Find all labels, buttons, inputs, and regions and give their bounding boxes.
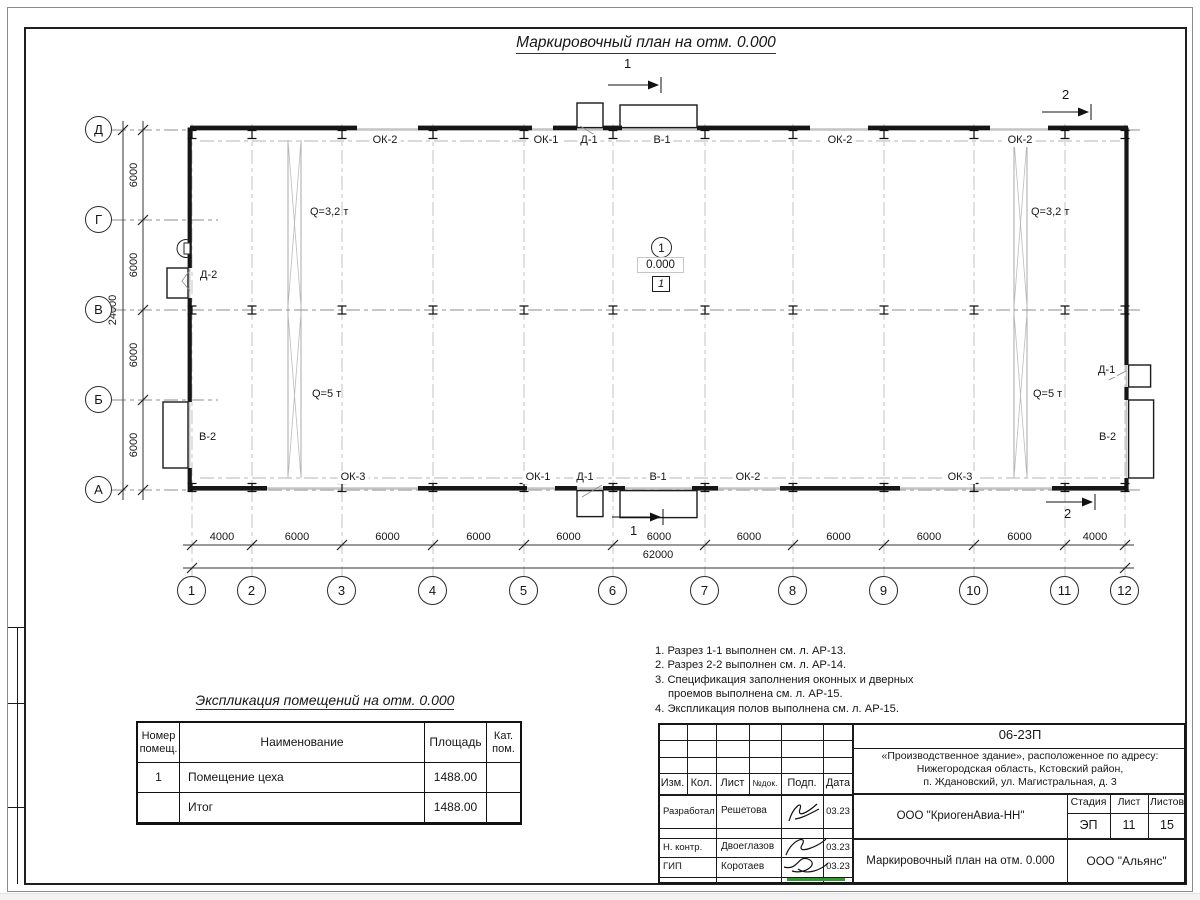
tb-header-list: Лист bbox=[716, 773, 749, 794]
tb-name: Коротаев bbox=[718, 857, 780, 877]
green-mark bbox=[787, 878, 845, 881]
section-mark-2-bottom: 2 bbox=[1064, 506, 1071, 521]
tb-date: 03.23 bbox=[823, 799, 853, 824]
dim-bottom-segment: 6000 bbox=[917, 531, 941, 543]
table-header-room-number: Номерпомещ. bbox=[138, 723, 180, 763]
dim-bottom-segment: 4000 bbox=[210, 531, 234, 543]
left-strip-cell-line bbox=[8, 703, 25, 704]
table-cell-cat bbox=[487, 763, 520, 793]
table-cell-area: 1488.00 bbox=[425, 763, 487, 793]
tb-header-ndok: №док. bbox=[749, 773, 781, 794]
room-table-title: Экспликация помещений на отм. 0.000 bbox=[150, 692, 500, 708]
note-line: 2. Разрез 2-2 выполнен см. л. АР-14. bbox=[655, 658, 965, 672]
crane-capacity-label: Q=3,2 т bbox=[1031, 206, 1069, 218]
window-mark: ОК-1 bbox=[523, 471, 554, 484]
title-block-line bbox=[716, 723, 717, 884]
note-line: 3. Спецификация заполнения оконных и две… bbox=[655, 673, 965, 687]
tb-stage-value: ЭП bbox=[1067, 814, 1110, 838]
table-header-area: Площадь bbox=[425, 723, 487, 763]
window-mark: ОК-3 bbox=[945, 471, 976, 484]
table-header-category: Кат.пом. bbox=[487, 723, 520, 763]
tb-project-line3: п. Ждановский, ул. Магистральная, д. 3 bbox=[860, 776, 1180, 790]
tb-drawing-name: Маркировочный план на отм. 0.000 bbox=[854, 840, 1067, 882]
axis-bubble-col-4: 4 bbox=[418, 576, 447, 605]
page-edge-strip bbox=[0, 893, 1200, 894]
dim-bottom-segment: 6000 bbox=[737, 531, 761, 543]
axis-bubble-row-В: В bbox=[85, 296, 112, 323]
crane-capacity-label: Q=5 т bbox=[312, 388, 341, 400]
tb-project-line1: «Производственное здание», расположенное… bbox=[860, 750, 1180, 764]
tb-header-izm: Изм. bbox=[658, 773, 687, 794]
tb-stage-label: Стадия bbox=[1067, 793, 1110, 813]
plan-linework bbox=[0, 0, 1200, 660]
note-line: 1. Разрез 1-1 выполнен см. л. АР-13. bbox=[655, 644, 965, 658]
gate-mark: В-1 bbox=[646, 471, 669, 484]
table-cell-num: 1 bbox=[138, 763, 180, 793]
tb-header-podp: Подп. bbox=[781, 773, 823, 794]
notes-block: 1. Разрез 1-1 выполнен см. л. АР-13. 2. … bbox=[655, 644, 965, 716]
door-mark: Д-1 bbox=[577, 134, 600, 147]
axis-bubble-row-Г: Г bbox=[85, 206, 112, 233]
left-strip-cell-line bbox=[8, 807, 25, 808]
title-block-line bbox=[658, 740, 853, 741]
axis-bubble-row-Б: Б bbox=[85, 386, 112, 413]
window-mark: ОК-1 bbox=[531, 134, 562, 147]
title-block-line bbox=[658, 828, 853, 829]
table-cell-num bbox=[138, 793, 180, 823]
axis-bubble-col-12: 12 bbox=[1110, 576, 1139, 605]
section-mark-1-top: 1 bbox=[624, 56, 631, 71]
window-mark: ОК-2 bbox=[825, 134, 856, 147]
dim-bottom-segment: 6000 bbox=[826, 531, 850, 543]
axis-bubble-col-7: 7 bbox=[690, 576, 719, 605]
dim-left-segment: 6000 bbox=[128, 433, 140, 457]
tb-role: Н. контр. bbox=[660, 838, 716, 857]
note-line: 4. Экспликация полов выполнена см. л. АР… bbox=[655, 702, 965, 716]
gate-mark-right: В-2 bbox=[1097, 431, 1118, 444]
dim-left-segment: 6000 bbox=[128, 343, 140, 367]
title-block-line bbox=[658, 757, 853, 758]
axis-bubble-col-9: 9 bbox=[869, 576, 898, 605]
axis-bubble-col-6: 6 bbox=[598, 576, 627, 605]
crane-capacity-label: Q=3,2 т bbox=[310, 206, 348, 218]
table-cell-name: Итог bbox=[180, 793, 425, 823]
window-mark: ОК-2 bbox=[1005, 134, 1036, 147]
elevation-mark: 0.000 bbox=[637, 257, 684, 273]
tb-sheets-label: Листов bbox=[1148, 793, 1186, 813]
floor-plan: 1 1 2 2 ОК-2 ОК-1 Д-1 В-1 ОК-2 ОК-2 ОК-3… bbox=[0, 0, 1200, 660]
table-header-name: Наименование bbox=[180, 723, 425, 763]
tb-role: ГИП bbox=[660, 857, 716, 877]
axis-bubble-col-2: 2 bbox=[237, 576, 266, 605]
room-number-bubble: 1 bbox=[651, 237, 672, 258]
axis-bubble-col-8: 8 bbox=[778, 576, 807, 605]
tb-company: ООО "КриогенАвиа-НН" bbox=[854, 795, 1067, 838]
dim-bottom-segment: 6000 bbox=[466, 531, 490, 543]
tb-contractor: ООО "Альянс" bbox=[1067, 840, 1186, 882]
dim-left-segment: 6000 bbox=[128, 163, 140, 187]
tb-role: Разработал bbox=[660, 797, 716, 826]
note-line: проемов выполнена см. л. АР-15. bbox=[668, 687, 965, 701]
tb-header-kol: Кол. bbox=[687, 773, 716, 794]
tb-name: Двоеглазов bbox=[718, 838, 780, 857]
tb-doc-number: 06-23П bbox=[854, 723, 1186, 748]
tb-sheet-label: Лист bbox=[1110, 793, 1148, 813]
door-mark-left: Д-2 bbox=[198, 269, 219, 282]
window-mark: ОК-2 bbox=[370, 134, 401, 147]
dim-bottom-segment: 6000 bbox=[647, 531, 671, 543]
axis-bubble-col-1: 1 bbox=[177, 576, 206, 605]
gate-mark: В-1 bbox=[650, 134, 673, 147]
tb-sheets-value: 15 bbox=[1148, 814, 1186, 838]
dim-bottom-segment: 6000 bbox=[1007, 531, 1031, 543]
tb-project-line2: Нижегородская область, Кстовский район, bbox=[860, 763, 1180, 777]
signature-scribble bbox=[783, 797, 823, 827]
gate-mark-left: В-2 bbox=[197, 431, 218, 444]
dim-bottom-segment: 6000 bbox=[375, 531, 399, 543]
dim-bottom-segment: 6000 bbox=[556, 531, 580, 543]
axis-bubble-row-Д: Д bbox=[85, 116, 112, 143]
table-cell-name: Помещение цеха bbox=[180, 763, 425, 793]
axis-bubble-col-10: 10 bbox=[959, 576, 988, 605]
drawing-sheet: Маркировочный план на отм. 0.000 1 1 2 2… bbox=[0, 0, 1200, 894]
section-mark-1-bottom: 1 bbox=[630, 523, 637, 538]
table-cell-cat bbox=[487, 793, 520, 823]
door-mark: Д-1 bbox=[573, 471, 596, 484]
title-block-line bbox=[658, 794, 853, 796]
dim-total-bottom: 62000 bbox=[643, 549, 674, 561]
tb-sheet-value: 11 bbox=[1110, 814, 1148, 838]
door-mark-right: Д-1 bbox=[1096, 364, 1117, 377]
tb-name: Решетова bbox=[718, 797, 780, 826]
title-block-line bbox=[854, 748, 1186, 749]
zone-mark: 1 bbox=[652, 276, 670, 292]
tb-header-data: Дата bbox=[823, 773, 853, 794]
signature-scribble bbox=[778, 833, 834, 879]
axis-bubble-col-5: 5 bbox=[509, 576, 538, 605]
dim-bottom-segment: 6000 bbox=[285, 531, 309, 543]
dim-left-segment: 6000 bbox=[128, 253, 140, 277]
axis-bubble-row-А: А bbox=[85, 476, 112, 503]
axis-bubble-col-3: 3 bbox=[327, 576, 356, 605]
axis-bubble-col-11: 11 bbox=[1050, 576, 1079, 605]
dim-bottom-segment: 4000 bbox=[1083, 531, 1107, 543]
section-mark-2-top: 2 bbox=[1062, 87, 1069, 102]
table-cell-area: 1488.00 bbox=[425, 793, 487, 823]
window-mark: ОК-3 bbox=[338, 471, 369, 484]
crane-capacity-label: Q=5 т bbox=[1033, 388, 1062, 400]
left-strip-divider bbox=[17, 627, 18, 884]
room-table: Номерпомещ. Наименование Площадь Кат.пом… bbox=[136, 721, 522, 825]
window-mark: ОК-2 bbox=[733, 471, 764, 484]
